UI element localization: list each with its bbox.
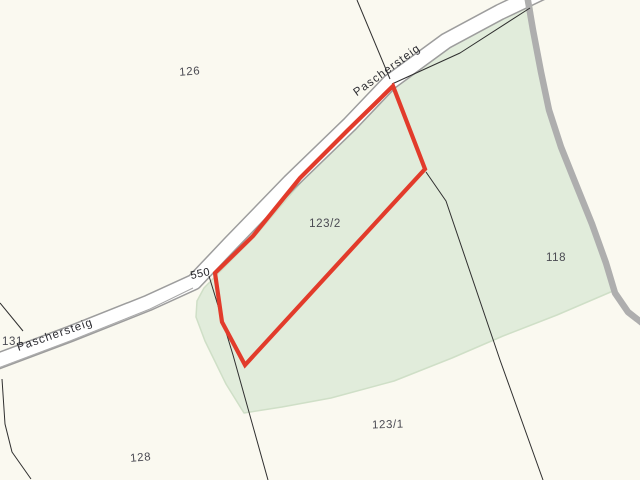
parcel-label-123-1: 123/1 (372, 418, 404, 431)
parcel-label-126: 126 (179, 65, 201, 78)
cadastral-map-canvas[interactable]: 126 131 550 123/2 118 123/1 128 Paschers… (0, 0, 640, 480)
parcel-label-118: 118 (546, 252, 566, 264)
map-viewport[interactable]: 126 131 550 123/2 118 123/1 128 Paschers… (0, 0, 640, 480)
parcel-label-123-2: 123/2 (309, 218, 341, 230)
parcel-label-128: 128 (130, 451, 152, 465)
